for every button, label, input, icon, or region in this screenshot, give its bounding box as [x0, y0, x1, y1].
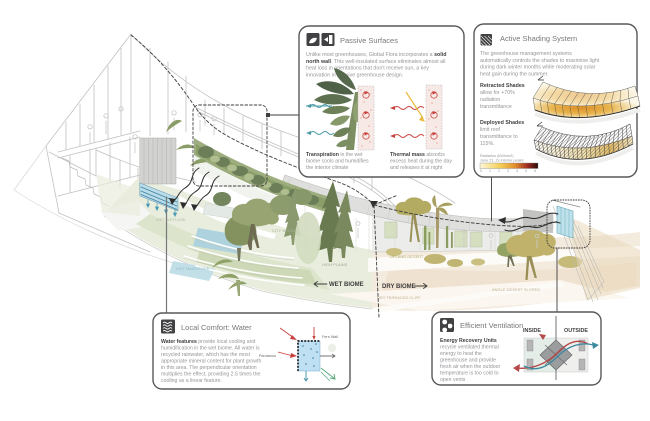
svg-text:in this area. The perpendicula: in this area. The perpendicular orientat…	[161, 365, 257, 371]
svg-text:north wall. This well-insulate: north wall. This well-insulated surface …	[306, 59, 445, 65]
svg-text:fresh air when the outdoor: fresh air when the outdoor	[440, 364, 501, 370]
svg-text:Pandanus: Pandanus	[259, 354, 276, 358]
svg-text:allow for +70%: allow for +70%	[480, 90, 515, 96]
svg-text:115%.: 115%.	[480, 141, 495, 147]
svg-text:Active Shading System: Active Shading System	[500, 34, 577, 43]
svg-text:6: 6	[534, 169, 536, 173]
svg-text:transmittance: transmittance	[480, 104, 512, 110]
svg-text:2: 2	[498, 169, 500, 173]
svg-text:radiation: radiation	[480, 97, 500, 103]
svg-text:CITY WOOD: CITY WOOD	[272, 228, 295, 233]
svg-text:Deployed Shades: Deployed Shades	[480, 120, 524, 126]
svg-text:Efficient Ventilation: Efficient Ventilation	[460, 321, 523, 330]
svg-text:WET BIOME: WET BIOME	[329, 282, 364, 288]
svg-text:Fern Wall: Fern Wall	[322, 335, 338, 339]
svg-text:limit roof: limit roof	[480, 127, 501, 133]
svg-text:biome cools and humidifies: biome cools and humidifies	[306, 159, 369, 165]
svg-text:WET MANGROVE: WET MANGROVE	[176, 266, 210, 271]
svg-text:HIGH PLAINS: HIGH PLAINS	[322, 262, 348, 267]
svg-text:multiplies the effect, providi: multiplies the effect, providing 2.5 tim…	[161, 372, 260, 378]
svg-text:Passive Surfaces: Passive Surfaces	[340, 36, 398, 45]
svg-text:open vents: open vents	[440, 377, 466, 383]
svg-text:transmittance to: transmittance to	[480, 134, 518, 140]
svg-text:The greenhouse management syst: The greenhouse management systems	[480, 51, 572, 57]
svg-text:5: 5	[525, 169, 527, 173]
svg-text:cooling as a linear feature.: cooling as a linear feature.	[161, 378, 222, 384]
svg-text:Water features provide local c: Water features provide local cooling and	[161, 339, 256, 345]
svg-text:DRY TERRACED CLIFF: DRY TERRACED CLIFF	[377, 295, 421, 300]
svg-text:automatically controls the sha: automatically controls the shades to max…	[480, 58, 600, 64]
svg-text:1: 1	[489, 169, 491, 173]
svg-text:Retracted Shades: Retracted Shades	[480, 83, 525, 89]
svg-text:greenhouse and provide: greenhouse and provide	[440, 358, 496, 364]
svg-text:appropriate mineral content fo: appropriate mineral content for plant gr…	[161, 359, 261, 365]
svg-text:OUTSIDE: OUTSIDE	[564, 328, 588, 334]
svg-text:energy to heat the: energy to heat the	[440, 351, 482, 357]
svg-text:INSIDE: INSIDE	[523, 328, 541, 334]
svg-text:heat loss in orientations that: heat loss in orientations that don't rec…	[306, 66, 429, 72]
svg-text:Local Comfort: Water: Local Comfort: Water	[181, 323, 252, 332]
svg-text:humidification in the wet biom: humidification in the wet biome. All wat…	[161, 346, 260, 352]
svg-text:recycle ventilated thermal: recycle ventilated thermal	[440, 345, 499, 351]
svg-text:and releases it at night: and releases it at night	[390, 165, 443, 171]
svg-text:Radiation (kWh/m2): Radiation (kWh/m2)	[480, 154, 514, 158]
svg-text:innovation in passive greenhou: innovation in passive greenhouse design.	[306, 72, 403, 78]
svg-text:DRY BIOME: DRY BIOME	[382, 284, 416, 290]
svg-text:Unlike most greenhouses, Globa: Unlike most greenhouses, Global Flora in…	[306, 52, 446, 58]
svg-text:4: 4	[516, 169, 518, 173]
svg-text:June 21, 2x interior peaks: June 21, 2x interior peaks	[480, 159, 524, 163]
svg-text:Energy Recovery Units: Energy Recovery Units	[440, 338, 497, 344]
svg-text:WET WETLAND: WET WETLAND	[156, 217, 186, 222]
svg-text:recycled rainwater, which has: recycled rainwater, which has the most	[161, 352, 251, 358]
svg-text:during dark winter months whil: during dark winter months while moderati…	[480, 65, 596, 71]
svg-text:excess heat during the day: excess heat during the day	[390, 159, 452, 165]
svg-text:Transpiration in the wet: Transpiration in the wet	[306, 152, 363, 158]
svg-text:ANGLE DESERT SLOPES: ANGLE DESERT SLOPES	[492, 287, 540, 292]
svg-text:0: 0	[480, 169, 482, 173]
svg-text:the interior climate: the interior climate	[306, 165, 348, 171]
svg-text:heat gain during the summer.: heat gain during the summer.	[480, 71, 549, 77]
svg-text:UPLAND DESERT: UPLAND DESERT	[390, 254, 424, 259]
svg-text:temperature is too cold to: temperature is too cold to	[440, 371, 499, 377]
svg-text:Thermal mass absorbs: Thermal mass absorbs	[390, 152, 445, 158]
svg-text:3: 3	[507, 169, 509, 173]
